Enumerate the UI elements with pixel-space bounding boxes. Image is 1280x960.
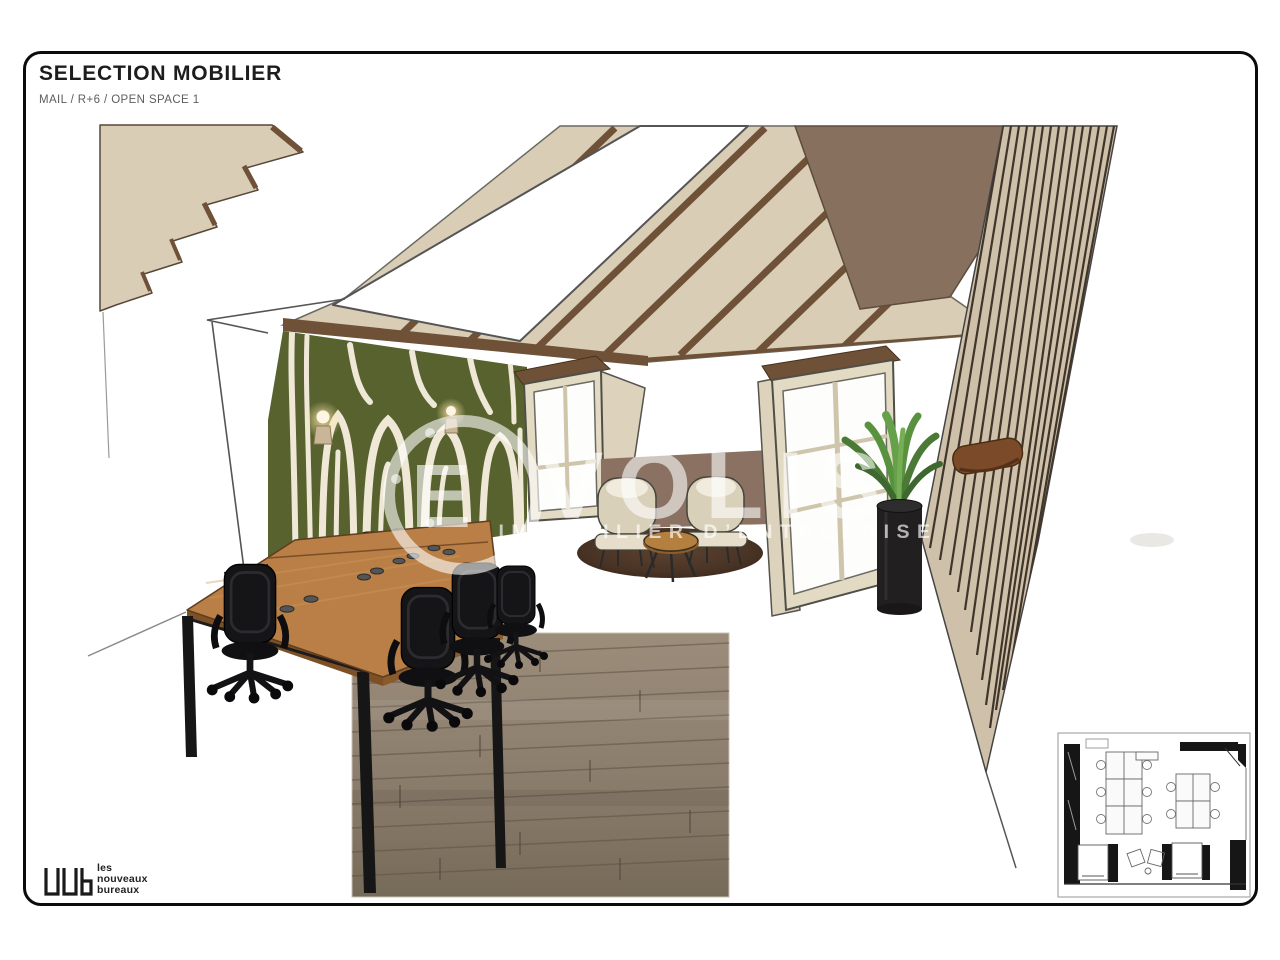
lnb-logo-icon <box>46 868 91 894</box>
footer-logo-line3: bureaux <box>97 884 139 896</box>
footer-logo: les nouveaux bureaux <box>46 862 148 896</box>
watermark-logo-letter: E <box>411 447 471 547</box>
wall-base-line <box>88 612 186 656</box>
presentation-slide: SELECTION MOBILIER MAIL / R+6 / OPEN SPA… <box>0 0 1280 960</box>
watermark-tagline: IMMOBILIER D’ENTREPRISE <box>498 521 937 543</box>
floor-plan-thumbnail <box>1058 733 1250 897</box>
scene-illustration: E VOLIS IMMOBILIER D’ENTREPRISE <box>0 0 1280 960</box>
floor-shadow <box>1130 533 1174 547</box>
